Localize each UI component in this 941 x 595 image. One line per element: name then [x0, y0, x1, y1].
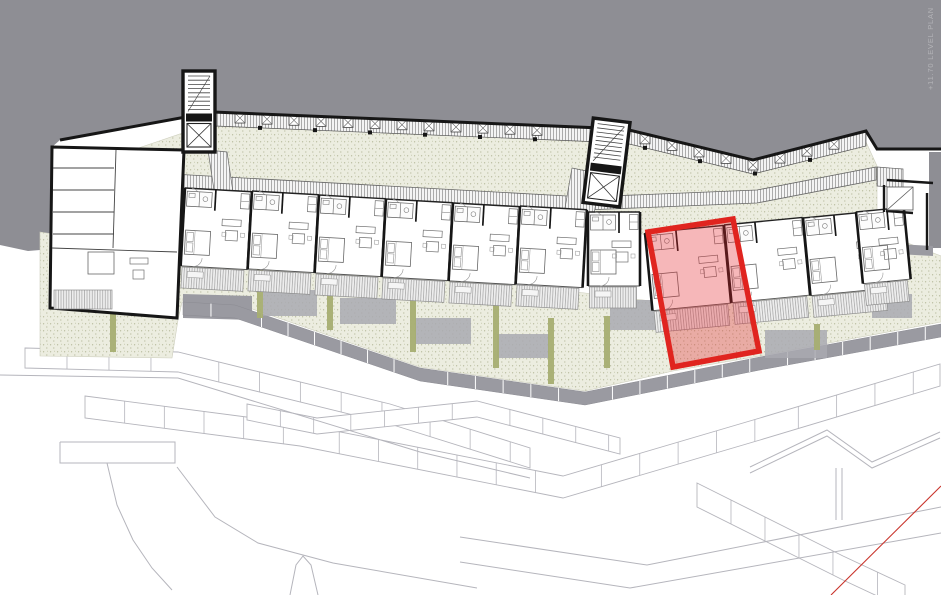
service-block [50, 147, 184, 318]
apartment-unit [313, 195, 385, 299]
terrace-deck [382, 278, 445, 302]
bench-glyph [321, 278, 337, 285]
terrace-deck [54, 290, 112, 309]
bed-glyph [318, 237, 344, 262]
terrain-line [60, 442, 175, 463]
bed-glyph [184, 230, 210, 255]
bench-glyph [595, 291, 611, 297]
bathroom [186, 191, 212, 207]
patio-slab [415, 318, 471, 344]
bench-glyph [522, 289, 538, 296]
stair-core [183, 71, 215, 152]
terrace-deck [449, 282, 512, 306]
apartment-unit [179, 188, 251, 292]
bathroom [320, 198, 346, 214]
patio-slab [340, 298, 396, 324]
hedge-strip [493, 300, 499, 368]
terrace-deck [590, 287, 637, 308]
apartment-unit [514, 206, 586, 310]
hedge-strip [548, 318, 554, 384]
terrace-deck [248, 270, 311, 294]
bench-glyph [455, 286, 471, 293]
bathroom [454, 206, 480, 222]
bench-glyph [187, 271, 203, 278]
watermark-level-label: +11.70 LEVEL PLAN [926, 7, 935, 90]
terrain-line [460, 507, 941, 565]
bed-glyph [519, 248, 545, 273]
bed-glyph [810, 257, 837, 283]
elevator-icon [588, 173, 620, 202]
apartment-unit [588, 212, 640, 308]
bathroom [521, 209, 547, 225]
elevator-icon [187, 124, 211, 148]
apartment-unit [447, 203, 519, 307]
patio-slab [497, 334, 549, 358]
apartment-unit [246, 191, 318, 295]
bench-glyph [388, 282, 404, 289]
bench-glyph [818, 298, 835, 306]
floor-plan-canvas: +11.70 LEVEL PLAN [0, 0, 941, 595]
hedge-strip [814, 324, 820, 350]
corridor-connector [877, 167, 903, 188]
bed-glyph [452, 245, 478, 270]
apartment-unit [380, 199, 452, 303]
bathroom [859, 212, 885, 229]
terrain-band [697, 483, 905, 595]
bench-glyph [870, 286, 887, 294]
terrain-line [177, 467, 477, 588]
bed-glyph [385, 241, 411, 266]
terrain-line [750, 436, 940, 473]
terrace-deck [181, 267, 244, 291]
stair-core [583, 118, 630, 207]
bathroom [387, 202, 413, 218]
bench-glyph [254, 274, 270, 281]
bed-glyph [591, 250, 616, 274]
terrain-line [107, 463, 172, 590]
plan-viewer: +11.70 LEVEL PLAN [0, 0, 941, 595]
terrain-line [290, 556, 318, 595]
bathroom [806, 218, 832, 235]
bathroom [591, 215, 616, 230]
terrace-deck [315, 274, 378, 298]
bed-glyph [251, 233, 277, 258]
hillside-pocket [929, 152, 941, 248]
bathroom [253, 194, 279, 210]
hedge-strip [604, 316, 610, 368]
terrace-deck [516, 285, 579, 309]
